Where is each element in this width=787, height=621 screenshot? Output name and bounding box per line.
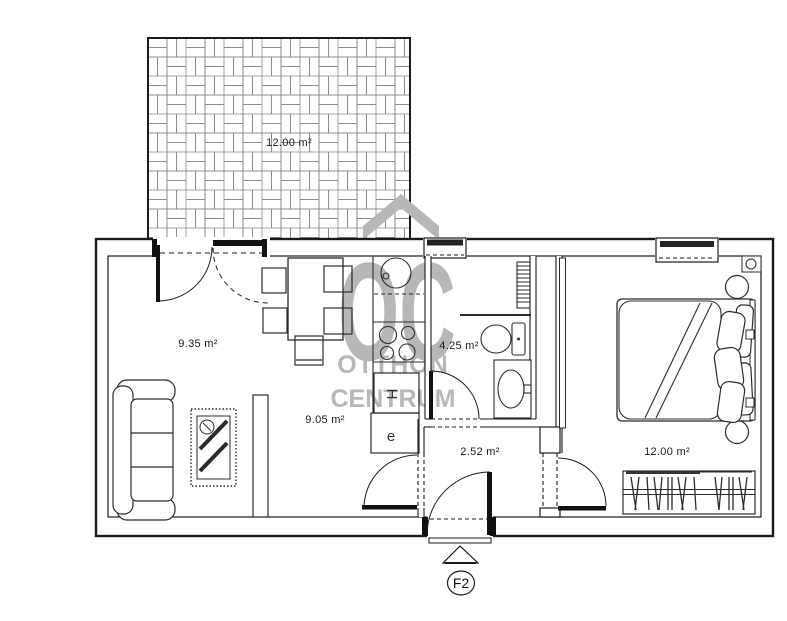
living-area-label: 9.35 m²	[178, 338, 217, 350]
toilet	[481, 323, 525, 355]
sofa-back	[113, 386, 133, 514]
bathroom-window	[423, 237, 467, 258]
terrace-door-sill	[213, 240, 263, 246]
kitchen-hall-door-leaf	[362, 505, 417, 510]
bedroom-window	[655, 237, 719, 263]
entrance-marker: F2	[443, 546, 478, 595]
sofa	[113, 380, 175, 520]
bathroom-area-label: 4.25 m²	[439, 340, 478, 352]
towel-radiator	[517, 262, 530, 308]
bedroom-door	[558, 458, 606, 511]
bedroom-door-leaf	[558, 506, 606, 511]
terrace-area-label: 12.00 m²	[266, 137, 312, 149]
dining-table	[288, 258, 343, 340]
dining-chair	[263, 308, 287, 333]
tv-board	[253, 395, 268, 517]
bed-pillow	[716, 381, 745, 424]
sofa-seat	[131, 399, 173, 501]
fridge-label: H	[383, 389, 400, 400]
bathroom-sink	[494, 360, 531, 418]
entrance-arrow-icon	[443, 546, 478, 563]
bathroom-door-leaf	[429, 371, 433, 419]
entrance-door-leaf	[487, 472, 492, 535]
kitchen-hall-door-swing	[364, 455, 417, 508]
floor-plan-drawing: OC OTTHON CENTRUM	[0, 0, 787, 621]
dining-chair	[262, 268, 286, 293]
double-bed	[617, 299, 755, 423]
bedroom-door-swing	[558, 458, 606, 506]
floor-plan-page: OC OTTHON CENTRUM	[0, 0, 787, 621]
bedside-stool	[726, 421, 749, 444]
entrance-door	[422, 472, 496, 543]
terrace-door-leaf	[156, 245, 160, 302]
wardrobe-rail	[626, 471, 700, 475]
terrace-door	[152, 237, 270, 303]
appliance-label: e	[387, 428, 395, 445]
entrance-marker-label: F2	[453, 575, 470, 591]
corner-unit	[742, 256, 761, 272]
hall-area-label: 2.52 m²	[460, 446, 499, 458]
bedroom-area-label: 12.00 m²	[644, 446, 690, 458]
rug	[191, 409, 236, 486]
wardrobe	[623, 471, 755, 515]
bedside-stool	[726, 276, 749, 299]
bedroom-radiator	[560, 258, 566, 428]
bedroom-furniture	[560, 256, 762, 514]
kitchen-area-label: 9.05 m²	[305, 414, 344, 426]
kitchen-hall-door	[362, 455, 417, 510]
entrance-threshold	[429, 538, 491, 543]
